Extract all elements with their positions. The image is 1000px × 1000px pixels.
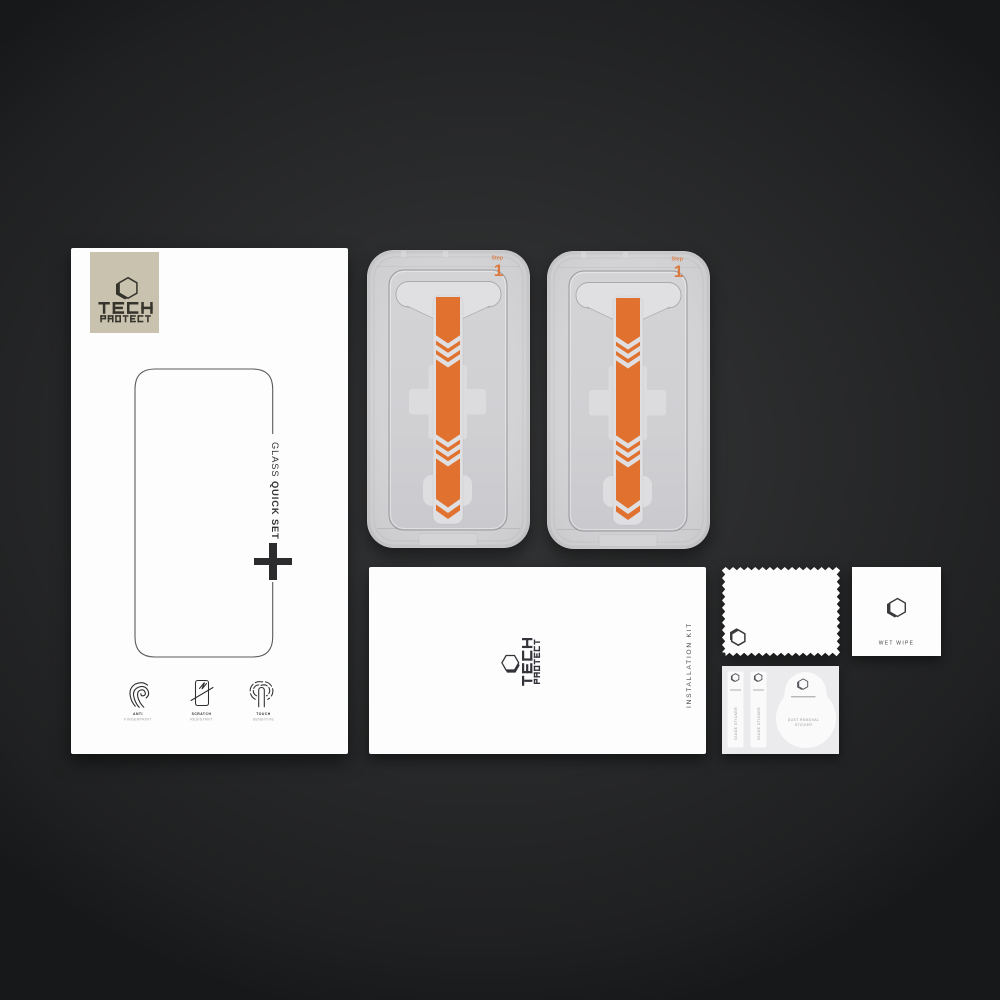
svg-text:TOUCH: TOUCH [256, 712, 271, 716]
svg-text:GUIDE STICKER: GUIDE STICKER [757, 707, 761, 740]
svg-text:RESISTANT: RESISTANT [190, 718, 212, 722]
svg-text:1: 1 [494, 261, 503, 280]
svg-text:DUST REMOVAL: DUST REMOVAL [788, 718, 820, 722]
svg-text:STICKER: STICKER [795, 723, 813, 727]
svg-text:FINGERPRINT: FINGERPRINT [124, 718, 151, 722]
svg-text:ANTI: ANTI [133, 712, 143, 716]
svg-text:1: 1 [674, 262, 683, 281]
svg-text:WET WIPE: WET WIPE [879, 641, 915, 647]
svg-text:GUIDE STICKER: GUIDE STICKER [734, 707, 738, 740]
svg-text:SCRATCH: SCRATCH [192, 712, 212, 716]
svg-text:SENSITIVE: SENSITIVE [253, 718, 275, 722]
